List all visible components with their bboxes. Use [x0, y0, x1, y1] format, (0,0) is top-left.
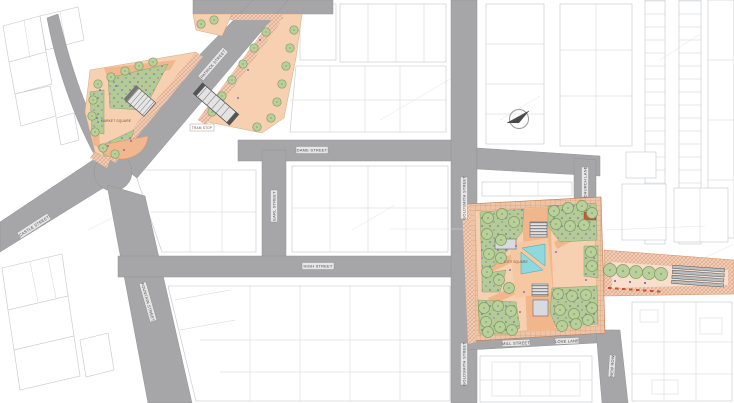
svg-text:GOLDSMITH STREET: GOLDSMITH STREET: [462, 342, 467, 386]
site-plan-canvas: MARKET SQUARE TRAM STOP: [0, 0, 734, 403]
street-label-dame: DAME STREET: [296, 147, 328, 154]
svg-text:GOLDSMITH STREET: GOLDSMITH STREET: [462, 176, 467, 220]
svg-text:EARL STREET: EARL STREET: [272, 191, 277, 221]
street-label-high: HIGH STREET: [302, 263, 334, 270]
svg-text:MILL STREET: MILL STREET: [502, 340, 530, 346]
street-label-church: CHURCH LANE: [582, 166, 589, 197]
svg-text:TRAM STOP: TRAM STOP: [192, 126, 212, 130]
site-plan-svg: MARKET SQUARE TRAM STOP: [0, 0, 734, 403]
street-label-mill: MILL STREET: [502, 339, 530, 346]
plaza-right-label: CITY SQUARE: [504, 260, 528, 264]
street-label-earl: EARL STREET: [271, 190, 278, 222]
street-label-new-row: NEW ROW: [608, 355, 616, 377]
svg-text:HIGH STREET: HIGH STREET: [303, 264, 332, 269]
street-label-love: LOVE LANE: [555, 337, 579, 344]
svg-text:LOVE LANE: LOVE LANE: [555, 338, 579, 344]
street-label-goldsmith-upper: GOLDSMITH STREET: [461, 176, 468, 220]
street-label-goldsmith-lower: GOLDSMITH STREET: [461, 342, 468, 386]
plaza-right: CITY SQUARE: [462, 197, 605, 344]
svg-text:DAME STREET: DAME STREET: [297, 148, 328, 153]
pergola-structure: [530, 222, 547, 237]
plaza-left-label: MARKET SQUARE: [101, 119, 131, 123]
svg-text:CHURCH LANE: CHURCH LANE: [583, 166, 588, 197]
street-high: [118, 256, 455, 277]
platform-label: TRAM STOP: [190, 124, 214, 131]
